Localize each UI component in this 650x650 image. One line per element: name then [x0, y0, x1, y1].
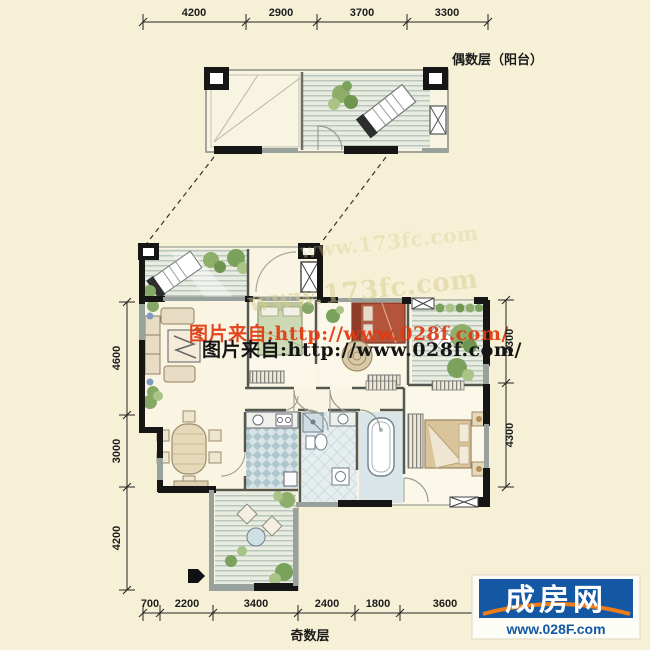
even-balcony-deck — [303, 73, 430, 149]
dim-bottom-4: 2400 — [315, 598, 339, 610]
dim-top-2: 2900 — [269, 7, 293, 19]
bathtub-icon — [368, 418, 394, 476]
floorplan-svg: 4200 2900 3700 3300 偶数层（阳台） — [0, 0, 650, 650]
dim-bottom-3: 3400 — [244, 598, 268, 610]
dim-left-2: 3000 — [111, 439, 123, 463]
window-hatch — [366, 381, 396, 390]
toilet-icon — [306, 436, 315, 449]
dim-right-1: 3300 — [504, 329, 516, 353]
logo-brand-text: 成房网 — [505, 584, 607, 617]
site-logo: 成房网 www.028F.com — [472, 575, 640, 639]
dim-top-3: 3700 — [350, 7, 374, 19]
photo-source-watermark-black: 图片来自:http://www.028f.com/ — [202, 338, 522, 361]
wardrobe — [408, 414, 423, 468]
column-box — [430, 106, 446, 134]
dim-right-2: 4300 — [504, 423, 516, 447]
dim-left-3: 4200 — [111, 526, 123, 550]
dim-top-1: 4200 — [182, 7, 206, 19]
dim-bottom-1: 700 — [141, 598, 159, 610]
window-hatch — [432, 381, 464, 390]
even-floor-balcony-plan — [204, 67, 448, 154]
dim-bottom-6: 3600 — [433, 598, 457, 610]
round-table — [247, 528, 265, 546]
floorplan-image: 4200 2900 3700 3300 偶数层（阳台） — [0, 0, 650, 650]
window-x-icon — [450, 497, 478, 507]
fridge — [284, 472, 297, 486]
dim-bottom-5: 1800 — [366, 598, 390, 610]
dim-top-4: 3300 — [435, 7, 459, 19]
wardrobe — [250, 371, 284, 383]
dim-bottom-2: 2200 — [175, 598, 199, 610]
logo-website-text: www.028F.com — [505, 621, 605, 637]
even-floor-label: 偶数层（阳台） — [452, 52, 543, 67]
odd-floor-label: 奇数层 — [290, 628, 329, 643]
dim-left-1: 4600 — [111, 346, 123, 370]
